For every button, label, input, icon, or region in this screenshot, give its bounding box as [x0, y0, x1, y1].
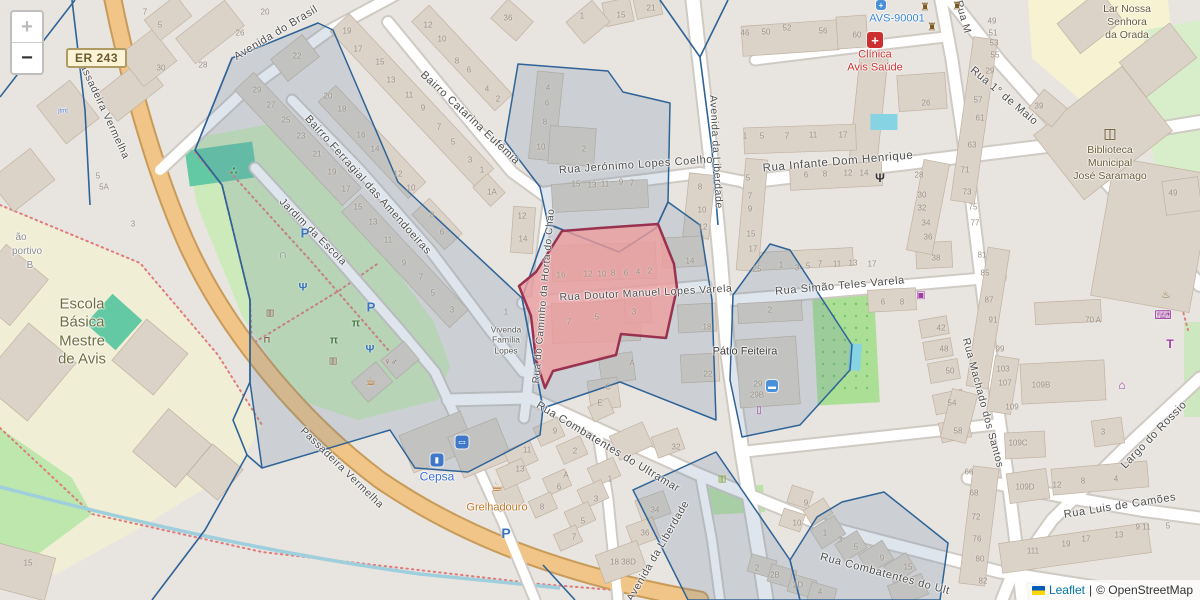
avs-label: AVS-90001: [869, 12, 924, 25]
house-number: 29: [986, 67, 995, 76]
house-number: 3: [131, 220, 135, 229]
cafe-icon: ☕: [491, 479, 504, 493]
picnic-icon: π: [330, 336, 338, 347]
house-number: 54: [948, 399, 957, 408]
bus-stop-icon: ▭: [456, 436, 469, 449]
house-number: 12: [1053, 481, 1062, 490]
house-number: 5: [806, 262, 810, 271]
house-number: 6: [467, 66, 471, 75]
house-number: 6: [624, 269, 628, 278]
waste-basket-icon: ▥: [329, 357, 338, 366]
leaflet-map[interactable]: Passadeira VermelhaPassadeira VermelhaAv…: [0, 0, 1200, 600]
house-number: 58: [954, 427, 963, 436]
ukraine-flag-icon: [1032, 586, 1045, 595]
house-number: 9: [748, 205, 752, 214]
house-number: 17: [749, 245, 758, 254]
house-number: 4: [485, 85, 489, 94]
house-number: 17: [354, 45, 363, 54]
house-number: 1: [779, 261, 783, 270]
house-number: 32: [918, 204, 927, 213]
hot-spring-icon: ♨: [1162, 291, 1171, 301]
house-number: 7: [748, 192, 752, 201]
house-number: 81: [978, 251, 987, 260]
house-number: 15: [747, 230, 756, 239]
house-number: 36: [924, 233, 933, 242]
house-number: 12: [699, 223, 708, 232]
house-number: 8: [540, 503, 544, 512]
house-number: 2: [573, 447, 577, 456]
house-number: 13: [1115, 531, 1124, 540]
street-label: Jardim da Escola: [277, 196, 349, 268]
house-number: 3: [1101, 428, 1105, 437]
house-number: 30: [918, 191, 927, 200]
house-number: 8: [543, 118, 547, 127]
house-number: 7: [818, 260, 822, 269]
zoom-control: + −: [10, 10, 44, 75]
house-number: 5: [595, 313, 599, 322]
house-number: 5: [451, 138, 455, 147]
house-number: 68: [970, 489, 979, 498]
house-number: 25: [753, 265, 762, 274]
house-number: 50: [762, 28, 771, 37]
house-number: 13: [588, 181, 597, 190]
house-number: 21: [647, 4, 656, 13]
house-number: 36: [504, 14, 513, 23]
house-number: E: [597, 399, 602, 408]
house-number: 34: [651, 506, 660, 515]
bag-shop-icon: ⌂: [1118, 379, 1125, 391]
house-number: 75: [969, 203, 978, 212]
house-number: 4: [546, 84, 550, 93]
house-number: 1: [480, 166, 484, 175]
book-icon: ◫: [1103, 126, 1116, 140]
street-label: Rua Infante Dom Henrique: [762, 149, 914, 174]
house-number: 18: [338, 105, 347, 114]
house-number: 6: [557, 483, 561, 492]
house-number: 38: [932, 254, 941, 263]
street-label: Rua do Caminho da Horta do Chão: [531, 208, 557, 384]
house-number: 3: [594, 495, 598, 504]
library-label: BibliotecaMunicipalJosé Saramago: [1073, 144, 1147, 182]
map-labels-layer: Passadeira VermelhaPassadeira VermelhaAv…: [0, 0, 1200, 600]
waste-basket-icon: ▥: [266, 309, 275, 318]
house-number: 18 38D: [610, 558, 636, 567]
house-number: A: [563, 471, 568, 480]
house-number: 7: [437, 123, 441, 132]
house-number: 15: [376, 58, 385, 67]
house-number: 85: [981, 269, 990, 278]
house-number: 9 11: [1136, 523, 1151, 532]
house-number: 15: [24, 559, 33, 568]
house-number: 12: [394, 170, 403, 179]
lar-label: Lar NossaSenhorada Orada: [1103, 3, 1151, 41]
house-number: 29B: [750, 391, 764, 400]
clothes-shop-icon: T: [1166, 338, 1173, 350]
water-well-icon: ♜: [952, 2, 962, 13]
house-number: 109B: [1032, 381, 1051, 390]
house-number: 3: [838, 536, 842, 545]
attribution-separator: |: [1089, 583, 1092, 597]
house-number: 56: [819, 27, 828, 36]
street-label: Rua Jerónimo Lopes Coelho: [559, 154, 714, 177]
house-number: 1: [504, 308, 508, 317]
house-number: 30: [157, 64, 166, 73]
house-number: 9: [619, 178, 623, 187]
house-number: 15: [572, 180, 581, 189]
house-number: 3: [450, 306, 454, 315]
house-number: 17: [839, 131, 848, 140]
house-number: 7: [630, 179, 634, 188]
grill-label: Grelhadouro: [466, 501, 527, 514]
house-number: 5: [431, 289, 435, 298]
gym-fragment: jtm|: [58, 108, 68, 115]
cafe-icon: ☕: [366, 375, 377, 387]
house-number: 80: [976, 555, 985, 564]
shop-icon: ▣: [916, 291, 925, 301]
house-number: A: [629, 359, 634, 368]
house-number: 32: [672, 443, 681, 452]
house-number: 72: [972, 513, 981, 522]
house-number: 21: [313, 150, 322, 159]
house-number: 9: [880, 554, 884, 563]
house-number: 28: [199, 61, 208, 70]
house-number: 109C: [1008, 439, 1027, 448]
memorial-icon: ∩: [279, 248, 288, 260]
house-number: 36: [641, 529, 650, 538]
street-label: Rua Simão Teles Varela: [775, 274, 906, 297]
fountain-icon: Ψ: [366, 345, 375, 356]
house-number: 50: [946, 367, 955, 376]
house-number: 5: [854, 543, 858, 552]
house-number: 109: [1005, 403, 1018, 412]
house-number: 2: [582, 145, 586, 154]
patio-label: Pátio Feiteira: [713, 345, 778, 358]
zoom-out-button[interactable]: −: [12, 43, 42, 73]
house-number: 15: [354, 203, 363, 212]
house-number: 12: [518, 212, 527, 221]
house-number: 5: [760, 132, 764, 141]
house-number: 57: [974, 96, 983, 105]
house-number: 60: [853, 31, 862, 40]
house-number: 4: [636, 268, 640, 277]
house-number: 26: [236, 29, 245, 38]
street-label: Rua Combatentes do Ult: [819, 551, 951, 597]
house-number: 1: [608, 475, 612, 484]
house-number: 66: [965, 468, 974, 477]
house-number: 39: [1035, 102, 1044, 111]
vending-icon: ▯: [756, 406, 762, 416]
house-number: 28: [915, 171, 924, 180]
house-number: 5: [746, 174, 750, 183]
house-number: 19: [328, 168, 337, 177]
house-number: 5: [581, 517, 585, 526]
house-number: 61: [976, 114, 985, 123]
house-number: 12: [584, 270, 593, 279]
house-number: 6: [881, 298, 885, 307]
defibrillator-icon: +: [876, 0, 886, 10]
laptop-shop-icon: ⌨: [1154, 309, 1171, 321]
house-number: 25: [282, 116, 291, 125]
house-number: 8: [430, 211, 434, 220]
house-number: 3: [795, 264, 799, 273]
house-number: 103: [996, 365, 1009, 374]
house-number: 15: [904, 563, 913, 572]
street-label: Rua Luis de Camões: [1063, 491, 1177, 521]
pavilion-fragment: ão: [15, 232, 26, 244]
playground-icon: ∴: [230, 167, 238, 178]
house-number: 14: [519, 235, 528, 244]
road-shield-er243: ER 243: [66, 48, 127, 68]
house-number: 34: [922, 219, 931, 228]
house-number: 6: [440, 228, 444, 237]
house-number: 87: [985, 296, 994, 305]
house-number: 17: [342, 185, 351, 194]
house-number: 23: [297, 132, 306, 141]
house-number: 48: [940, 345, 949, 354]
house-number: 2B: [770, 571, 780, 580]
house-number: 10: [698, 206, 707, 215]
house-number: 73: [963, 188, 972, 197]
house-number: 51: [989, 29, 998, 38]
house-number: 5: [1166, 522, 1170, 531]
house-number: 8: [611, 269, 615, 278]
house-number: 10: [598, 270, 607, 279]
clinic-cross-icon: +: [867, 32, 883, 48]
house-number: 14: [371, 145, 380, 154]
street-label: Rua Machado dos Santos: [960, 337, 1006, 470]
recycling-icon: ▥: [718, 475, 727, 484]
house-number: 7: [572, 533, 576, 542]
house-number: 22: [293, 52, 302, 61]
house-number: 20: [324, 92, 333, 101]
clinic-label: ClínicaAvis Saúde: [847, 49, 902, 76]
house-number: 11: [523, 446, 531, 455]
house-number: 16: [557, 271, 566, 280]
street-label: Avenida da Liberdade: [707, 95, 725, 209]
toilets-icon: ♀♂: [384, 358, 398, 367]
house-number: 8: [900, 298, 904, 307]
house-number: 11: [833, 260, 841, 269]
house-number: 77: [971, 219, 980, 228]
house-number: 16: [357, 131, 366, 140]
zoom-in-button[interactable]: +: [12, 12, 42, 43]
fuel-label: Cepsa: [420, 470, 455, 485]
house-number: 9: [402, 259, 406, 268]
street-label: Bairro Catarina Eufémia: [418, 69, 522, 167]
car-dealer-icon: ▬: [766, 380, 778, 392]
house-number: 26: [922, 99, 931, 108]
house-number: 2: [768, 306, 772, 315]
vivenda-label: VivendaFamíliaLopes: [491, 324, 522, 355]
attribution-bar: Leaflet | © OpenStreetMap: [1025, 580, 1200, 600]
house-number: 70 A: [1085, 316, 1101, 325]
house-number: 10: [537, 143, 546, 152]
house-number: 2: [648, 267, 652, 276]
house-number: 1A: [487, 188, 497, 197]
house-number: 2: [755, 564, 759, 573]
pavilion-fragment: portivo: [12, 246, 42, 258]
house-number: 8: [698, 183, 702, 192]
water-well-icon: ♜: [927, 23, 937, 34]
house-number: 14: [686, 257, 695, 266]
house-number: 7: [567, 318, 571, 327]
house-number: 1: [743, 132, 747, 141]
bench-icon: ⊓: [263, 336, 270, 345]
house-number: 42: [937, 324, 946, 333]
house-number: 5: [158, 21, 162, 30]
house-number: 19: [1062, 540, 1071, 549]
pavilion-fragment: B: [27, 260, 34, 272]
street-label: Passadeira Vermelha: [74, 55, 132, 161]
water-well-icon: ♜: [920, 3, 930, 14]
house-number: 10: [438, 35, 447, 44]
antenna-icon: Ψ: [875, 172, 885, 184]
house-number: 10: [407, 184, 416, 193]
house-number: 107: [998, 379, 1011, 388]
house-number: 17: [868, 260, 877, 269]
house-number: 53: [990, 39, 999, 48]
house-number: 15: [617, 11, 626, 20]
house-number: C: [605, 383, 611, 392]
house-number: 9: [553, 427, 557, 436]
house-number: 111: [1027, 547, 1039, 556]
house-number: 12: [424, 21, 433, 30]
house-number: 12: [844, 169, 853, 178]
house-number: 5A: [99, 183, 109, 192]
house-number: 55: [991, 51, 1000, 60]
house-number: 10: [793, 519, 802, 528]
house-number: 8: [823, 170, 827, 179]
house-number: 3: [632, 308, 636, 317]
picnic-icon: π: [352, 319, 360, 330]
house-number: 29: [253, 86, 262, 95]
house-number: 7: [143, 8, 147, 17]
street-label: Passadeira Vermelha: [298, 425, 386, 511]
house-number: 18: [703, 323, 712, 332]
house-number: 11: [601, 180, 609, 189]
house-number: 1: [823, 529, 827, 538]
house-number: 22: [704, 370, 713, 379]
house-number: 20: [261, 8, 270, 17]
street-label: Rua Doutor Manuel Lopes Varela: [559, 282, 732, 303]
fountain-icon: Ψ: [299, 283, 308, 294]
house-number: 27: [267, 101, 276, 110]
house-number: 49: [988, 17, 997, 26]
house-number: 4: [1114, 475, 1118, 484]
house-number: 7: [419, 273, 423, 282]
house-number: 71: [961, 166, 970, 175]
house-number: 8: [455, 57, 459, 66]
house-number: 9: [421, 104, 425, 113]
house-number: 11: [809, 131, 817, 140]
house-number: 52: [783, 24, 792, 33]
house-number: 63: [968, 141, 977, 150]
house-number: 29: [754, 380, 763, 389]
osm-copyright: © OpenStreetMap: [1096, 583, 1193, 597]
house-number: 13: [516, 465, 525, 474]
house-number: 13: [369, 218, 378, 227]
house-number: 19: [343, 27, 352, 36]
house-number: 11: [384, 236, 392, 245]
house-number: 11: [405, 91, 413, 100]
school-name: EscolaBásicaMestrede Avis: [58, 295, 106, 368]
house-number: 17: [1082, 535, 1091, 544]
house-number: 2D: [793, 581, 803, 590]
house-number: 9: [804, 499, 808, 508]
leaflet-link[interactable]: Leaflet: [1049, 583, 1085, 597]
house-number: 2: [496, 95, 500, 104]
street-label: Largo do Rossio: [1119, 399, 1190, 471]
house-number: 46: [741, 29, 750, 38]
house-number: 8: [1081, 477, 1085, 486]
house-number: 14: [860, 169, 869, 178]
parking-icon: P: [367, 301, 376, 314]
house-number: 91: [989, 316, 998, 325]
house-number: 13: [849, 259, 858, 268]
house-number: 7: [785, 132, 789, 141]
house-number: 76: [973, 535, 982, 544]
street-label: Avenida do Brasil: [232, 3, 320, 63]
house-number: 1: [580, 12, 584, 21]
fuel-icon: ▮: [431, 454, 444, 467]
house-number: 6: [804, 171, 808, 180]
parking-icon: P: [301, 227, 310, 240]
house-number: 109D: [1015, 483, 1034, 492]
house-number: 5: [96, 172, 100, 181]
house-number: 99: [996, 345, 1005, 354]
house-number: 82: [979, 577, 988, 586]
house-number: 4: [818, 588, 822, 597]
house-number: 13: [387, 76, 396, 85]
house-number: 49: [1169, 189, 1178, 198]
house-number: 3: [468, 156, 472, 165]
house-number: 6: [545, 99, 549, 108]
parking-icon: P: [501, 526, 510, 540]
